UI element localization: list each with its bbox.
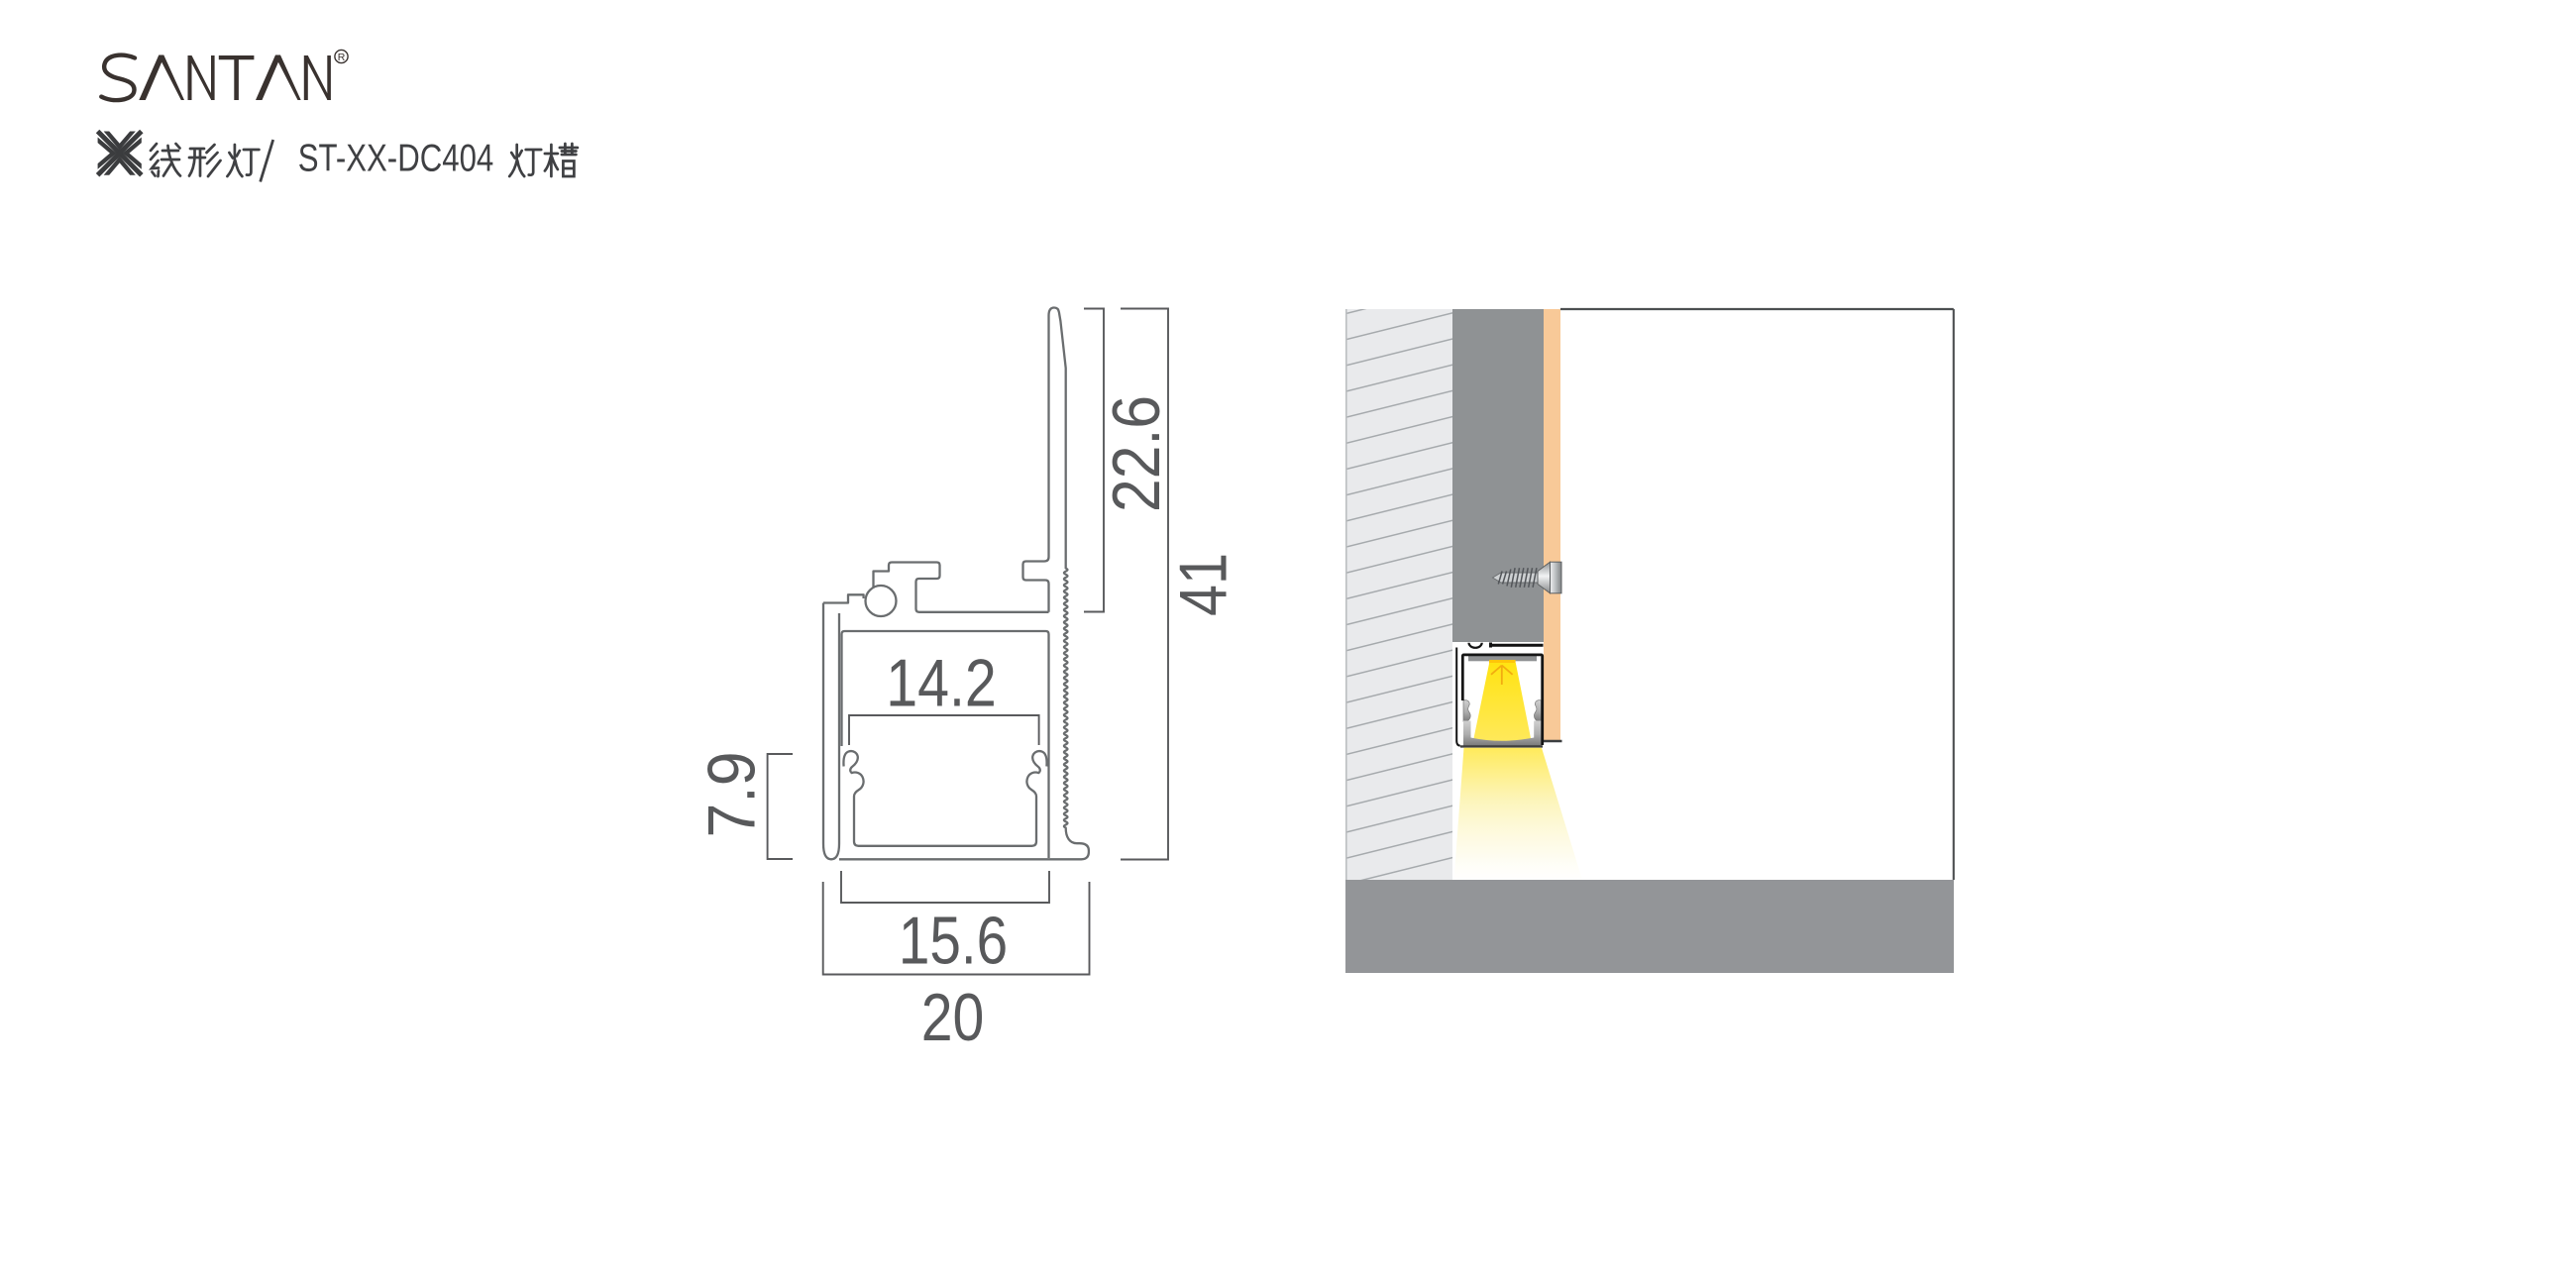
svg-text:22.6: 22.6: [1099, 395, 1174, 512]
svg-text:41: 41: [1166, 553, 1241, 616]
svg-text:14.2: 14.2: [886, 646, 997, 721]
svg-text:20: 20: [921, 980, 985, 1055]
svg-text:R: R: [338, 52, 346, 63]
svg-text:ST-XX-DC404: ST-XX-DC404: [298, 137, 494, 179]
svg-text:15.6: 15.6: [899, 904, 1008, 979]
svg-text:7.9: 7.9: [694, 752, 769, 838]
